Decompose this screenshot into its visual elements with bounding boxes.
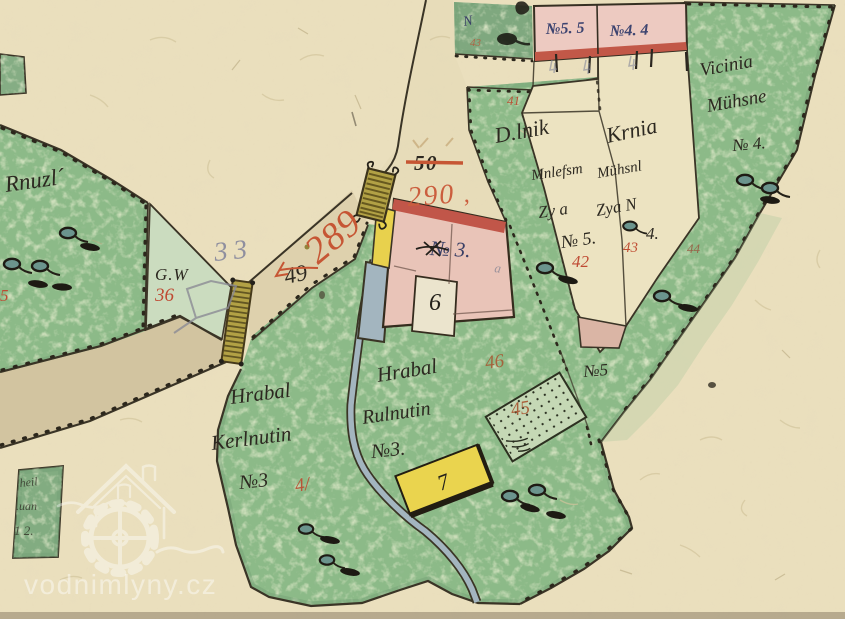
- svg-text:43: 43: [470, 37, 482, 49]
- svg-text:.uan: .uan: [16, 499, 37, 513]
- svg-text:45: 45: [509, 397, 531, 421]
- svg-text:33: 33: [211, 233, 254, 267]
- svg-text:290 ,: 290 ,: [406, 178, 472, 213]
- svg-text:1 2.: 1 2.: [14, 523, 34, 538]
- svg-text:5: 5: [0, 286, 9, 305]
- svg-text:6: 6: [429, 290, 441, 316]
- svg-text:vodnimlyny.cz: vodnimlyny.cz: [24, 569, 217, 600]
- svg-text:№ 4.: № 4.: [731, 133, 767, 155]
- svg-text:44: 44: [687, 241, 701, 256]
- svg-text:4.: 4.: [646, 224, 659, 243]
- svg-text:№3: №3: [237, 469, 269, 494]
- svg-text:36: 36: [154, 285, 175, 306]
- svg-text:№3.: №3.: [369, 438, 406, 464]
- svg-text:G.W: G.W: [155, 265, 190, 284]
- svg-text:41: 41: [507, 93, 520, 108]
- svg-text:42: 42: [572, 252, 590, 271]
- svg-text:№5. 5: №5. 5: [545, 20, 585, 38]
- svg-text:43: 43: [623, 240, 638, 256]
- svg-text:46: 46: [484, 350, 506, 374]
- svg-text:№4. 4: №4. 4: [609, 22, 649, 40]
- svg-text:№5: №5: [582, 360, 609, 381]
- svg-text:№ 3.: № 3.: [429, 236, 472, 262]
- svg-text:heil: heil: [19, 474, 39, 490]
